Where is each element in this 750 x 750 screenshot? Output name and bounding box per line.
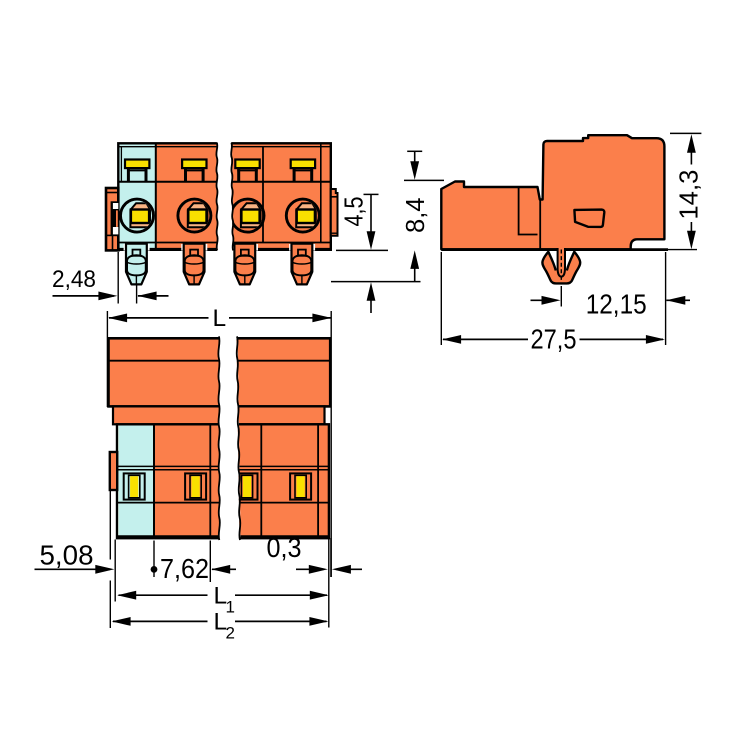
svg-text:2: 2: [226, 624, 235, 643]
svg-text:4,5: 4,5: [339, 197, 369, 227]
svg-text:7,62: 7,62: [160, 553, 209, 584]
svg-text:5,08: 5,08: [40, 539, 94, 570]
svg-text:12,15: 12,15: [586, 288, 647, 319]
svg-text:27,5: 27,5: [531, 323, 577, 354]
svg-text:0,3: 0,3: [267, 532, 302, 563]
svg-text:14,3: 14,3: [674, 170, 704, 220]
svg-text:8,4: 8,4: [400, 198, 430, 234]
svg-text:2,48: 2,48: [52, 266, 96, 293]
svg-text:L: L: [213, 305, 227, 332]
